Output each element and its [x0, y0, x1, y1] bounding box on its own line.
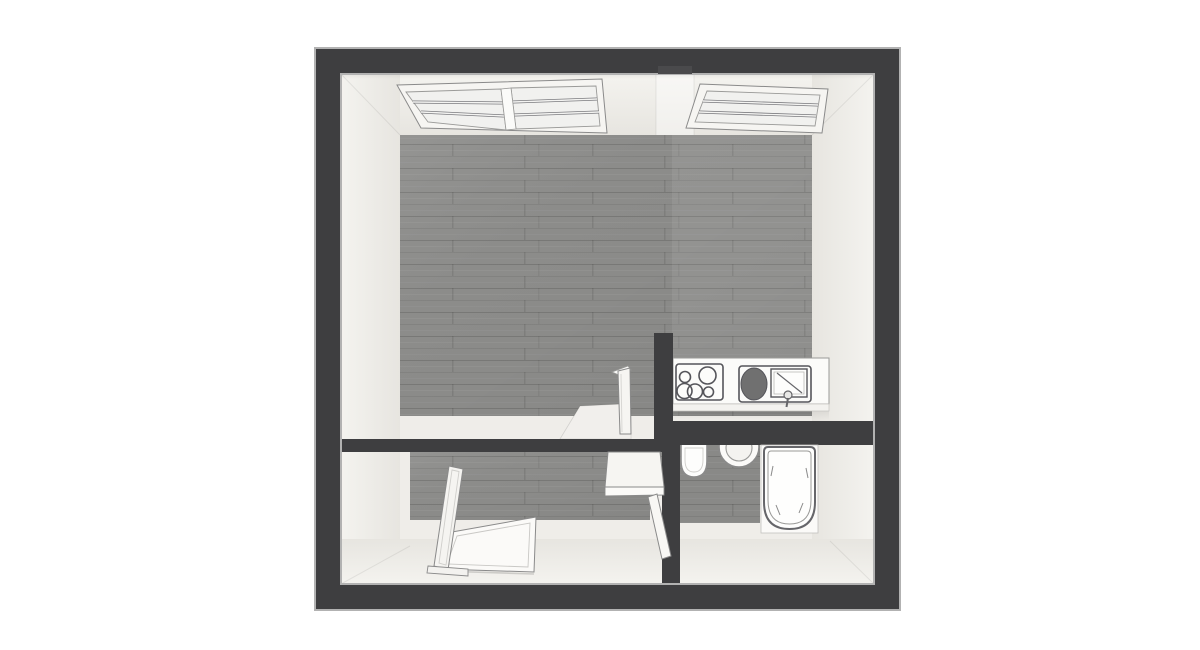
wall-main-hallway — [341, 439, 671, 452]
wall-hallway-bathroom — [662, 445, 680, 584]
kitchen-wood-lighter — [672, 135, 812, 358]
bathtub — [764, 447, 815, 529]
skylight-single — [686, 84, 828, 133]
door-leaf — [618, 368, 631, 434]
skylight-single-glass — [695, 91, 820, 126]
bathtub-group — [761, 445, 818, 533]
floorplan-svg — [0, 0, 1200, 650]
right-wall-face — [812, 74, 874, 584]
bottom-wall-face — [341, 539, 874, 584]
wall-kitchen-bathroom — [654, 421, 874, 445]
floors — [400, 135, 812, 523]
skylight-double-glass-right — [511, 86, 600, 129]
glazing-bar — [413, 102, 503, 103]
kitchen-counter-front-edge — [673, 404, 829, 411]
kitchen-unit — [673, 358, 829, 420]
hallway-table-top — [605, 452, 664, 487]
faucet-base — [784, 391, 792, 399]
kitchen-sink-unit — [739, 366, 811, 407]
outer-wall-notch — [658, 66, 692, 74]
cooktop — [676, 364, 723, 400]
left-wall-face — [341, 74, 400, 584]
counter-shadow — [673, 411, 829, 420]
skylight-double — [397, 79, 607, 133]
floorplan-canvas — [0, 0, 1200, 650]
sink-basin-oval — [741, 368, 767, 400]
